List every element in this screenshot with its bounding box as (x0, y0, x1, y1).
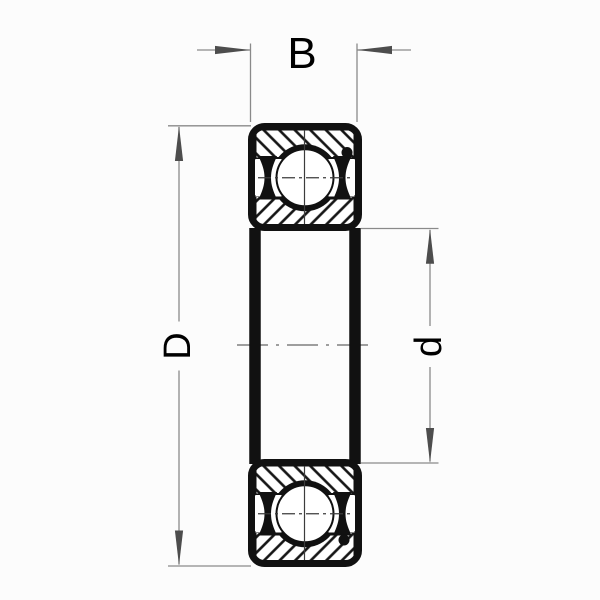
arrowhead-right (357, 46, 392, 54)
seal-anchor-dot-top (342, 147, 353, 158)
label-outer-diameter-D: D (157, 332, 199, 359)
bearing-dimension-diagram: B D d (0, 0, 600, 600)
bearing-section-bottom (252, 463, 359, 564)
arrowhead-down (175, 531, 183, 566)
label-bore-diameter-d: d (408, 336, 450, 357)
label-width-B: B (287, 29, 316, 78)
diagram-canvas: B D d (0, 0, 600, 600)
arrowhead-up (426, 229, 434, 264)
arrowhead-up (175, 126, 183, 161)
dimension-outer-diameter: D (157, 126, 251, 566)
arrowhead-down (426, 428, 434, 463)
dimension-width: B (197, 29, 411, 122)
arrowhead-left (215, 46, 251, 54)
dimension-bore-diameter: d (361, 229, 450, 464)
bearing-section-top (252, 127, 359, 228)
seal-anchor-dot-bottom (339, 535, 350, 546)
